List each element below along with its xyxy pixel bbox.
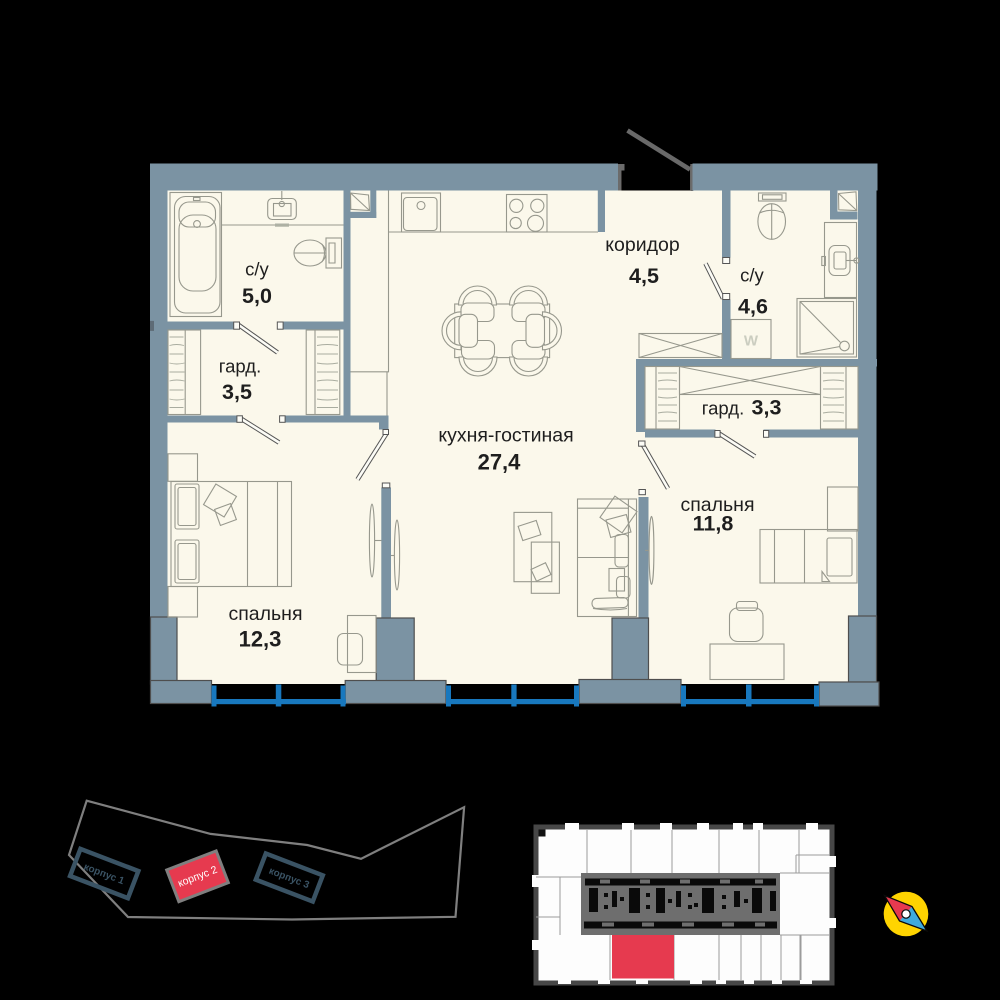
svg-text:12,3: 12,3 <box>239 627 282 652</box>
svg-text:11,8: 11,8 <box>693 512 734 536</box>
svg-text:3,5: 3,5 <box>222 380 252 404</box>
svg-text:4,5: 4,5 <box>629 264 659 288</box>
svg-text:3,3: 3,3 <box>752 396 782 420</box>
svg-text:кухня-гостиная: кухня-гостиная <box>438 425 573 447</box>
svg-text:4,6: 4,6 <box>738 295 768 319</box>
svg-text:27,4: 27,4 <box>478 450 522 475</box>
svg-text:гард.: гард. <box>702 398 744 419</box>
svg-text:с/у: с/у <box>245 259 269 280</box>
svg-text:гард.: гард. <box>219 356 261 377</box>
svg-text:коридор: коридор <box>605 234 680 256</box>
svg-text:с/у: с/у <box>740 265 764 286</box>
svg-text:W: W <box>744 333 759 350</box>
svg-text:5,0: 5,0 <box>242 284 272 308</box>
svg-text:спальня: спальня <box>228 603 302 625</box>
